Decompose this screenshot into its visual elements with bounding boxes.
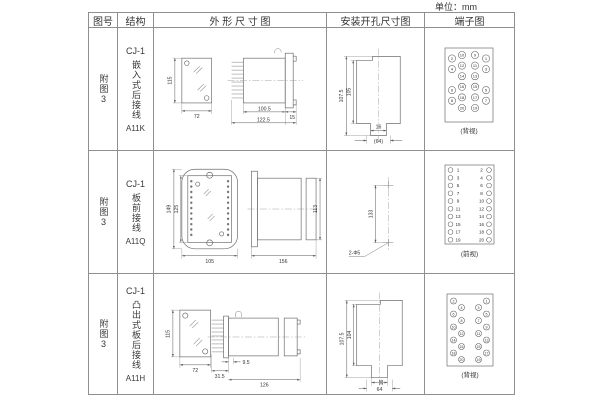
- terminal-number: 13: [455, 214, 461, 219]
- dim-hole-spacing: 133: [369, 209, 375, 218]
- terminal-number: 12: [460, 332, 464, 336]
- terminal-number: 14: [452, 338, 456, 342]
- header-mounting: 安装开孔尺寸图: [327, 13, 425, 28]
- terminal-grid: 2468101214161820911131517191357: [448, 51, 489, 111]
- dim-overall-length: 122.5: [257, 117, 270, 123]
- terminal-number: 20: [479, 237, 485, 242]
- terminal-number: 18: [460, 94, 465, 99]
- front-view: 149 125 105: [166, 169, 237, 265]
- row2-terminal-diagram: 1357911131517192468101214161820 (前视): [425, 151, 514, 274]
- terminal-number: 8: [461, 319, 463, 323]
- model-label: CJ-1: [126, 286, 145, 296]
- terminal-number: 6: [480, 183, 483, 188]
- corner-screw: [204, 95, 209, 100]
- terminal-number: 3: [485, 66, 488, 71]
- outline-drawing-a11h: 115 72 9.5 31.5: [154, 274, 326, 394]
- row1-terminal-diagram: 2468101214161820911131517191357 (背视): [425, 28, 514, 151]
- dim-overall-width: (64): [374, 138, 383, 144]
- terminal-number: 7: [485, 98, 488, 103]
- terminal-number: 7: [457, 190, 460, 195]
- row2-fig-no: 附图3: [89, 151, 118, 274]
- terminal-number: 12: [460, 63, 465, 68]
- terminal-circle: [487, 175, 492, 180]
- row3-fig-no: 附图3: [89, 274, 118, 394]
- terminal-circle: [487, 221, 492, 226]
- terminal-number: 18: [452, 351, 456, 355]
- terminal-number: 11: [477, 332, 481, 336]
- side-view: 100.5 15 122.5: [228, 48, 304, 124]
- terminal-number: 12: [479, 206, 485, 211]
- terminal-number: 8: [451, 98, 454, 103]
- mount-screw: [207, 239, 213, 245]
- terminal-number: 19: [477, 358, 481, 362]
- terminal-circle: [487, 167, 492, 172]
- terminal-circle: [487, 190, 492, 195]
- terminal-number: 6: [453, 312, 455, 316]
- terminal-number: 11: [473, 63, 478, 68]
- header-fig-no: 图号: [89, 13, 118, 28]
- dim-pin-depth: 31.5: [215, 374, 225, 380]
- terminal-number: 4: [451, 66, 454, 71]
- row3-structure: CJ-1 凸出式板后接线 A11H: [118, 274, 154, 394]
- terminal-number: 9: [486, 325, 488, 329]
- unit-label: 单位：mm: [88, 0, 513, 12]
- dim-overall-length: 126: [260, 383, 269, 389]
- terminal-circle: [448, 237, 453, 242]
- terminal-number: 6: [451, 87, 454, 92]
- terminal-number: 10: [479, 198, 485, 203]
- terminal-diagram-a11h: 2610141848121620371115191591317 (背视): [425, 274, 514, 394]
- terminal-number: 11: [456, 206, 461, 211]
- terminal-number: 8: [480, 190, 483, 195]
- dim-front-height: 115: [165, 330, 171, 338]
- mount-type-label: 板前接线: [131, 193, 140, 233]
- terminal-pins: [212, 320, 224, 352]
- corner-screw: [220, 231, 224, 235]
- dim-stub-length: 9.5: [242, 360, 249, 366]
- mount-type-label: 嵌入式后接线: [131, 60, 140, 120]
- terminal-number: 9: [457, 198, 460, 203]
- row1-outline-drawing: 115 72 100.5 15 122.5: [154, 28, 327, 151]
- model-code-label: A11H: [126, 374, 145, 383]
- terminal-number: 16: [460, 84, 465, 89]
- dim-inner-height: 105: [346, 87, 352, 96]
- terminal-circle: [448, 167, 453, 172]
- header-terminal: 端子图: [425, 13, 514, 28]
- fig-no-text: 附图3: [99, 197, 108, 228]
- terminal-number: 13: [485, 338, 489, 342]
- terminal-circle: [487, 198, 492, 203]
- terminal-number: 15: [473, 84, 478, 89]
- terminal-number: 16: [460, 345, 464, 349]
- dim-front-width: 105: [205, 259, 214, 265]
- terminal-number: 2: [453, 299, 455, 303]
- dim-panel-depth: 15: [289, 114, 295, 120]
- terminal-circle: [448, 190, 453, 195]
- dim-outer-height: 149: [166, 204, 172, 213]
- row2-structure: CJ-1 板前接线 A11Q: [118, 151, 154, 274]
- dim-inner-height: 125: [174, 204, 180, 213]
- outline-drawing-a11q: 149 125 105 156 113: [154, 151, 326, 274]
- dim-slot-width: 16: [376, 124, 382, 130]
- terminal-circle: [487, 183, 492, 188]
- terminal-number: 13: [473, 73, 478, 78]
- terminal-number: 14: [460, 73, 465, 78]
- terminal-grid: 1357911131517192468101214161820: [448, 167, 491, 242]
- model-code-label: A11K: [126, 124, 145, 133]
- row2-mounting-drawing: 133 2-Φ5: [327, 151, 425, 274]
- terminal-number: 17: [485, 351, 489, 355]
- terminal-number: 1: [486, 299, 488, 303]
- dim-front-width: 72: [194, 113, 200, 119]
- terminal-diagram-a11q: 1357911131517192468101214161820 (前视): [425, 151, 514, 274]
- front-view: 115 72: [165, 310, 210, 374]
- terminal-number: 17: [473, 94, 478, 99]
- corner-screw: [203, 349, 208, 354]
- terminal-number: 1: [485, 55, 488, 60]
- terminal-number: 5: [457, 183, 460, 188]
- mounting-drawing-a11q: 133 2-Φ5: [327, 151, 424, 274]
- terminal-circle: [448, 206, 453, 211]
- corner-screw: [183, 313, 188, 318]
- row1-mounting-drawing: 107.5 105 16 (64): [327, 28, 425, 151]
- terminal-number: 2: [480, 167, 483, 172]
- model-label: CJ-1: [126, 179, 145, 189]
- row3-terminal-diagram: 2610141848121620371115191591317 (背视): [425, 274, 514, 394]
- terminal-number: 20: [460, 358, 464, 362]
- row1-structure: CJ-1 嵌入式后接线 A11K: [118, 28, 154, 151]
- corner-screw: [185, 60, 190, 65]
- terminal-number: 3: [478, 306, 480, 310]
- dim-overall-width: 64: [377, 387, 383, 393]
- view-caption: (前视): [461, 249, 478, 258]
- terminal-number: 2: [451, 55, 454, 60]
- model-label: CJ-1: [126, 46, 145, 56]
- terminal-number: 4: [461, 306, 463, 310]
- terminal-number: 15: [477, 345, 481, 349]
- row2-outline-drawing: 149 125 105 156 113: [154, 151, 327, 274]
- outline-drawing-a11k: 115 72 100.5 15 122.5: [154, 28, 326, 151]
- mounting-drawing-a11h: 107.5 104 16 64: [327, 274, 424, 394]
- dim-slot-width: 16: [379, 380, 385, 386]
- datasheet-page: 单位：mm 图号 结构 外 形 尺 寸 图 安装开孔尺寸图 端子图 附图3 CJ…: [0, 0, 600, 400]
- terminal-number: 9: [474, 52, 477, 57]
- terminal-grid: 2610141848121620371115191591317: [451, 298, 490, 363]
- header-outline: 外 形 尺 寸 图: [154, 13, 327, 28]
- terminal-number: 19: [473, 105, 478, 110]
- terminal-number: 10: [460, 52, 465, 57]
- terminal-circle: [487, 206, 492, 211]
- terminal-number: 1: [457, 167, 460, 172]
- latch-hook: [236, 311, 242, 317]
- terminal-number: 18: [479, 229, 485, 234]
- dim-outer-height: 107.5: [339, 89, 345, 102]
- terminal-circle: [487, 237, 492, 242]
- view-caption: (背视): [460, 126, 477, 135]
- terminal-circle: [448, 214, 453, 219]
- terminal-number: 5: [485, 87, 488, 92]
- terminal-number: 20: [460, 105, 465, 110]
- terminal-circle: [487, 229, 492, 234]
- terminal-number: 7: [478, 319, 480, 323]
- dim-side-height: 113: [313, 204, 319, 212]
- terminal-number: 14: [479, 214, 485, 219]
- terminal-circle: [487, 214, 492, 219]
- mounting-drawing-a11k: 107.5 105 16 (64): [327, 28, 424, 151]
- terminal-number: 10: [452, 325, 456, 329]
- row3-outline-drawing: 115 72 9.5 31.5: [154, 274, 327, 394]
- model-code-label: A11Q: [126, 237, 146, 246]
- fig-no-text: 附图3: [99, 74, 108, 105]
- row3-mounting-drawing: 107.5 104 16 64: [327, 274, 425, 394]
- corner-screw: [196, 182, 200, 186]
- front-view: 115 72: [167, 58, 211, 120]
- side-view: 9.5 31.5 126: [208, 311, 305, 389]
- latch-hook: [274, 48, 281, 53]
- hole-size-label: 2-Φ5: [349, 250, 361, 256]
- terminal-number: 5: [486, 312, 488, 316]
- dim-body-length: 100.5: [258, 106, 271, 112]
- terminal-circle: [448, 198, 453, 203]
- mount-type-label: 凸出式板后接线: [131, 300, 140, 370]
- view-caption: (背视): [461, 370, 478, 379]
- row1-fig-no: 附图3: [89, 28, 118, 151]
- terminal-circle: [448, 221, 453, 226]
- terminal-number: 16: [479, 221, 485, 226]
- dim-inner-height: 104: [347, 331, 353, 340]
- fig-no-text: 附图3: [99, 319, 108, 350]
- terminal-circle: [448, 183, 453, 188]
- terminal-diagram-a11k: 2468101214161820911131517191357 (背视): [425, 28, 514, 151]
- terminal-pins: [232, 62, 244, 98]
- header-structure: 结构: [118, 13, 154, 28]
- mount-screw: [207, 172, 213, 178]
- side-view: 156 113: [247, 171, 322, 265]
- dimension-table: 图号 结构 外 形 尺 寸 图 安装开孔尺寸图 端子图 附图3 CJ-1 嵌入式…: [88, 12, 515, 395]
- terminal-number: 19: [455, 237, 461, 242]
- terminal-number: 4: [480, 175, 483, 180]
- dim-front-width: 72: [192, 368, 198, 374]
- terminal-number: 3: [457, 175, 460, 180]
- dim-front-height: 115: [167, 76, 173, 84]
- terminal-circle: [448, 175, 453, 180]
- terminal-number: 17: [455, 229, 461, 234]
- terminal-circle: [448, 229, 453, 234]
- dim-outer-height: 107.5: [339, 332, 345, 345]
- dim-overall-length: 156: [279, 259, 288, 265]
- terminal-number: 15: [455, 221, 461, 226]
